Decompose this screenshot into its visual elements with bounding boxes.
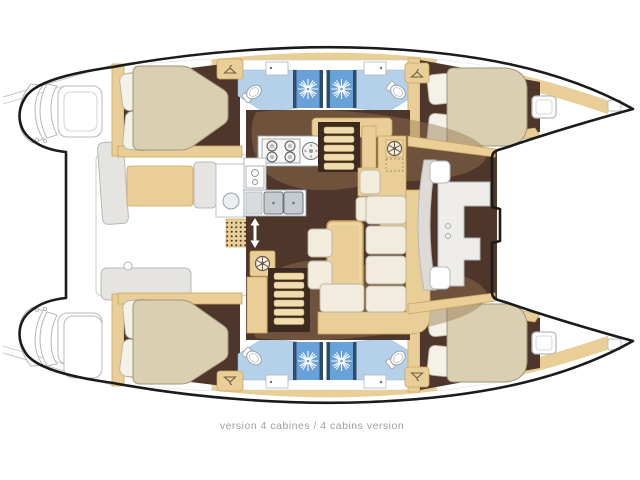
- galley-cabinet: [247, 277, 267, 333]
- cockpit-bench: [64, 316, 102, 378]
- companionway-stairs-top: [318, 122, 360, 172]
- double-sink: [244, 190, 306, 216]
- sofa-cushion: [366, 196, 406, 224]
- wetbar-sink: [223, 193, 239, 209]
- sofa-cushion: [320, 284, 364, 312]
- catamaran-floor-plan: version 4 cabines / 4 cabins version: [0, 0, 640, 480]
- seat-cushion: [430, 267, 450, 289]
- hotplate-icon: [303, 143, 320, 160]
- companionway-stairs-bottom: [268, 268, 310, 332]
- cockpit-bench-cushion: [127, 166, 193, 206]
- sofa-cushion: [366, 286, 406, 312]
- deck-grating: [226, 219, 249, 247]
- floor-plan-svg: [0, 0, 640, 480]
- nav-seat: [360, 170, 380, 194]
- cockpit-seat-back: [194, 162, 216, 208]
- stool-cushion: [308, 229, 332, 257]
- sofa-cushion: [366, 226, 406, 254]
- stove-icon: [262, 139, 300, 163]
- plan-caption: version 4 cabines / 4 cabins version: [0, 420, 624, 432]
- oven-icon: [246, 166, 264, 188]
- sofa-cushion: [366, 256, 406, 284]
- seat-cushion: [430, 161, 450, 183]
